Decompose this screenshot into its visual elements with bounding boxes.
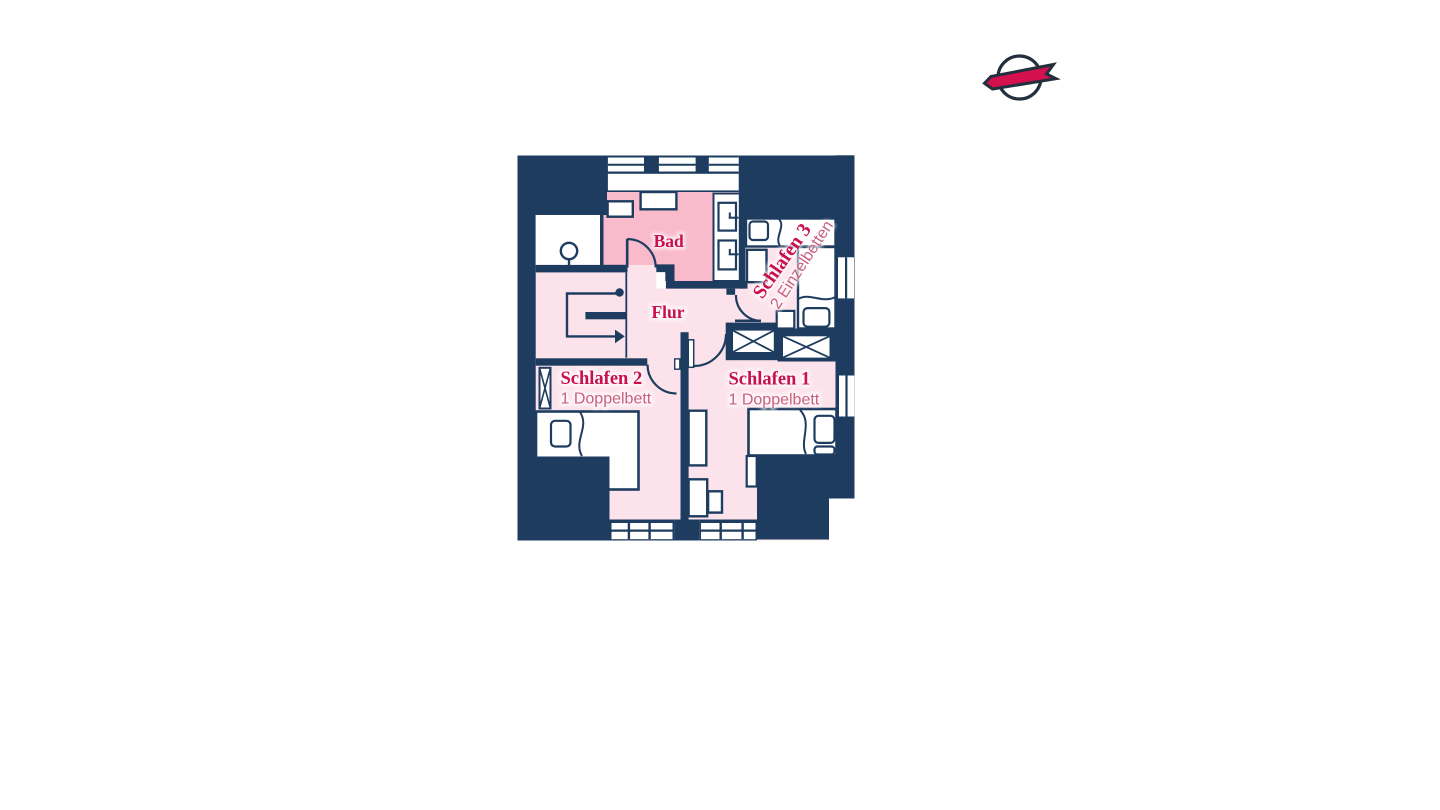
- svg-text:Flur: Flur: [651, 302, 684, 322]
- svg-text:Schlafen 2: Schlafen 2: [561, 369, 643, 389]
- svg-text:1 Doppelbett: 1 Doppelbett: [729, 391, 820, 408]
- svg-text:Bad: Bad: [654, 231, 684, 251]
- svg-text:Schlafen 1: Schlafen 1: [729, 369, 811, 389]
- svg-text:1 Doppelbett: 1 Doppelbett: [561, 390, 652, 407]
